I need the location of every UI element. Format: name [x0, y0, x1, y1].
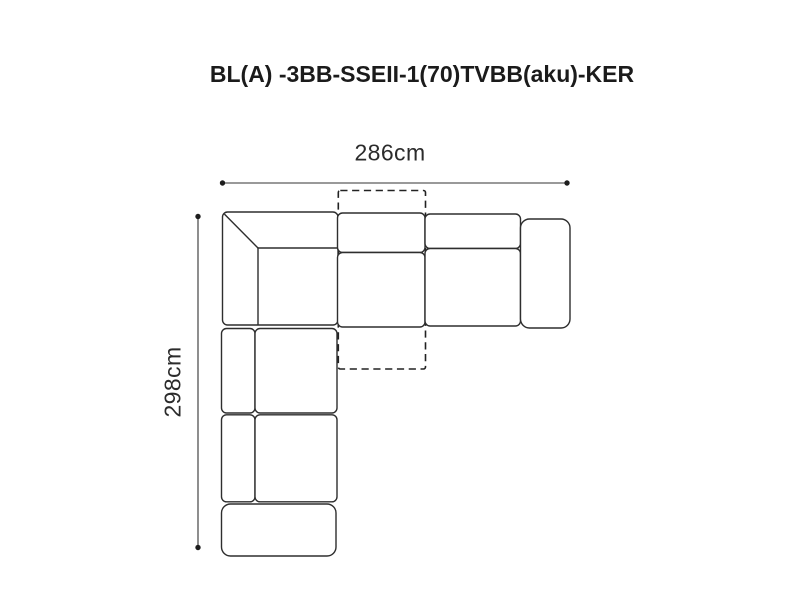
sofa-plan-diagram: 286cm 298cm	[0, 0, 800, 600]
width-dimension-end-dot-left	[220, 180, 225, 185]
corner-module	[223, 212, 339, 325]
right-armrest	[521, 219, 571, 328]
sofa-plan-page: BL(A) -3BB-SSEII-1(70)TVBB(aku)-KER	[0, 0, 800, 600]
right-module-backrest	[425, 214, 521, 249]
middle-seat-module	[338, 213, 426, 327]
height-dimension: 298cm	[160, 214, 201, 550]
left-module-1-seat	[255, 329, 337, 414]
width-dimension-label: 286cm	[354, 140, 425, 166]
middle-module-backrest	[338, 213, 426, 253]
height-dimension-end-dot-top	[195, 214, 200, 219]
width-dimension-end-dot-right	[564, 180, 569, 185]
height-dimension-label: 298cm	[160, 346, 186, 417]
middle-module-seat	[338, 253, 426, 328]
left-seat-module-2	[222, 415, 338, 502]
left-module-1-backrest	[222, 329, 256, 414]
height-dimension-end-dot-bottom	[195, 545, 200, 550]
width-dimension: 286cm	[220, 140, 570, 186]
right-module-seat	[425, 249, 521, 327]
bottom-armrest	[222, 504, 337, 556]
right-seat-module	[425, 214, 521, 326]
left-module-2-seat	[255, 415, 337, 502]
left-module-2-backrest	[222, 415, 256, 502]
left-seat-module-1	[222, 329, 338, 414]
